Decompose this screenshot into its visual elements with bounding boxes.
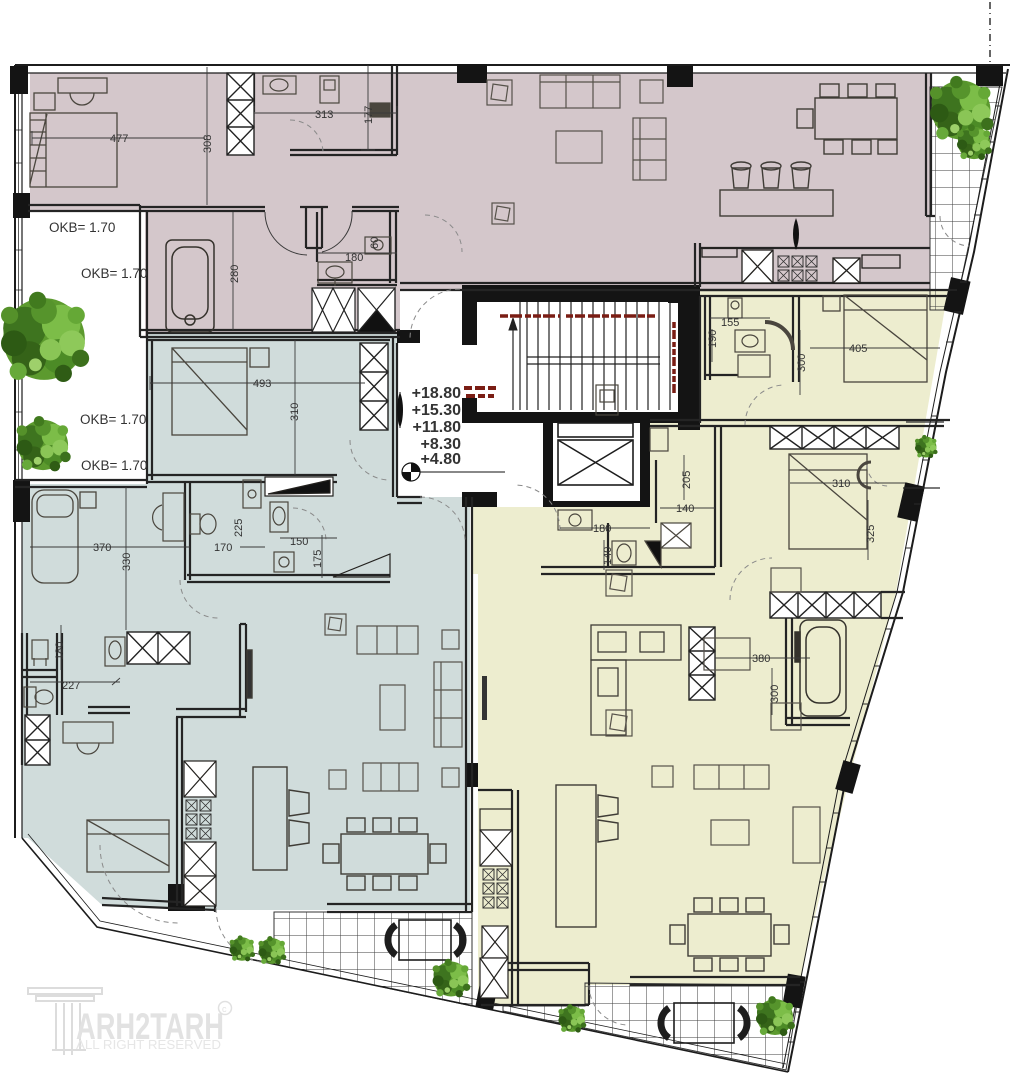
svg-text:OKB= 1.70: OKB= 1.70 xyxy=(81,458,147,473)
svg-text:205: 205 xyxy=(681,471,693,489)
svg-text:477: 477 xyxy=(110,133,128,145)
svg-text:313: 313 xyxy=(315,109,333,121)
svg-text:ALL RIGHT RESERVED: ALL RIGHT RESERVED xyxy=(76,1038,221,1052)
svg-text:+15.30: +15.30 xyxy=(412,402,461,419)
svg-text:OKB= 1.70: OKB= 1.70 xyxy=(81,266,147,281)
svg-text:140: 140 xyxy=(676,503,694,515)
svg-text:308: 308 xyxy=(202,135,214,153)
svg-text:c: c xyxy=(222,1004,227,1014)
svg-text:155: 155 xyxy=(721,317,739,329)
svg-text:180: 180 xyxy=(345,252,363,264)
svg-text:380: 380 xyxy=(752,653,770,665)
svg-text:180: 180 xyxy=(593,523,611,535)
svg-text:280: 280 xyxy=(229,265,241,283)
svg-text:330: 330 xyxy=(121,553,133,571)
svg-text:370: 370 xyxy=(93,542,111,554)
svg-text:493: 493 xyxy=(253,378,271,390)
svg-text:225: 225 xyxy=(233,519,245,537)
svg-text:60: 60 xyxy=(369,237,381,249)
svg-text:180: 180 xyxy=(54,642,66,660)
svg-text:170: 170 xyxy=(214,542,232,554)
svg-text:325: 325 xyxy=(865,525,877,543)
svg-text:175: 175 xyxy=(312,550,324,568)
svg-text:+4.80: +4.80 xyxy=(421,451,462,468)
svg-text:OKB= 1.70: OKB= 1.70 xyxy=(80,412,146,427)
svg-text:190: 190 xyxy=(707,330,719,348)
svg-text:OKB= 1.70: OKB= 1.70 xyxy=(49,220,115,235)
svg-text:+11.80: +11.80 xyxy=(413,419,462,436)
svg-text:177: 177 xyxy=(363,106,375,124)
svg-text:227: 227 xyxy=(62,680,80,692)
svg-text:310: 310 xyxy=(289,403,301,421)
svg-text:150: 150 xyxy=(290,536,308,548)
svg-text:405: 405 xyxy=(849,343,867,355)
svg-text:300: 300 xyxy=(769,685,781,703)
svg-text:140: 140 xyxy=(602,547,614,565)
svg-text:+18.80: +18.80 xyxy=(412,385,461,402)
svg-text:310: 310 xyxy=(832,478,850,490)
svg-text:300: 300 xyxy=(796,354,808,372)
